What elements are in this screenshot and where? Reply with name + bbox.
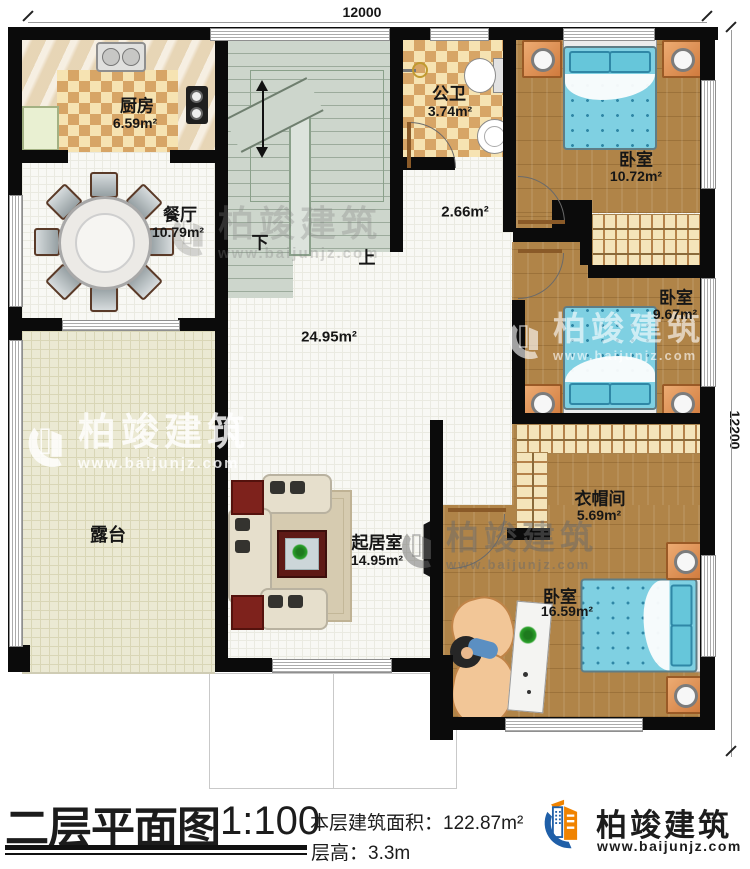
window xyxy=(701,80,716,189)
brand-logo-icon xyxy=(538,797,592,851)
nightstand xyxy=(522,40,562,78)
dining-table-top xyxy=(75,213,135,273)
fridge xyxy=(22,106,59,151)
pillow xyxy=(569,383,611,405)
window xyxy=(272,659,392,673)
kitchen-rug xyxy=(57,70,178,152)
window xyxy=(701,555,716,657)
wall xyxy=(22,318,62,331)
room-label-terrace: 露台 xyxy=(90,521,126,547)
dimension-right: 12200 xyxy=(727,411,743,450)
room-area-dining: 10.79m² xyxy=(152,224,204,240)
pillow xyxy=(609,51,651,73)
dimension-top: 12000 xyxy=(343,4,382,20)
stairwell-lower-flight xyxy=(228,252,293,298)
sofa-loveseat xyxy=(262,474,332,514)
room-label-kitchen: 厨房 xyxy=(120,92,154,117)
toilet-bowl xyxy=(464,58,496,93)
dining-chair xyxy=(34,228,60,256)
floor-height-value: 3.3m xyxy=(368,843,410,864)
room-label-living: 起居室 xyxy=(352,529,403,554)
sink-basin xyxy=(102,48,120,66)
terrace-floor xyxy=(22,331,215,674)
wall xyxy=(8,645,30,672)
wall xyxy=(390,658,432,672)
floor-height-label: 层高： xyxy=(311,843,368,864)
closet-rack xyxy=(592,239,702,266)
dining-table xyxy=(58,196,152,290)
cloakroom-rack xyxy=(516,452,548,534)
wall xyxy=(507,528,550,540)
pillow xyxy=(609,383,651,405)
sliding-door xyxy=(62,320,180,331)
wall xyxy=(215,300,228,672)
person-head xyxy=(461,647,473,659)
title-underline xyxy=(5,845,307,850)
bedroom-bottom-door xyxy=(448,508,506,512)
room-area-kitchen: 6.59m² xyxy=(113,115,157,131)
window xyxy=(563,28,655,41)
floor-area-value: 122.87m² xyxy=(443,813,523,834)
side-table xyxy=(231,595,264,630)
burner xyxy=(190,107,203,120)
window xyxy=(505,718,643,732)
room-area-open: 24.95m² xyxy=(301,329,357,346)
arrow-up-icon xyxy=(256,80,268,91)
stair-label-down: 下 xyxy=(252,229,269,254)
brand-logo xyxy=(538,797,592,856)
sink-bowl xyxy=(484,126,505,147)
room-label-dining: 餐厅 xyxy=(163,201,197,226)
stair-direction-arrow xyxy=(262,90,264,148)
room-label-bedroom-mid: 卧室 xyxy=(659,284,693,309)
cloakroom-rack xyxy=(516,424,702,454)
roof-outline xyxy=(209,673,335,789)
brand-site: www.baijunjz.com xyxy=(597,838,742,854)
window xyxy=(701,278,716,387)
wall xyxy=(170,150,215,163)
bedroom-top-door xyxy=(518,220,565,224)
desk-plant xyxy=(519,626,537,644)
dimension-line-right xyxy=(731,30,732,757)
pillow xyxy=(671,585,693,627)
wall xyxy=(513,228,585,242)
room-area-living: 14.95m² xyxy=(351,552,403,568)
nightstand xyxy=(662,40,702,78)
wall xyxy=(22,150,68,163)
room-area-bedroom-top: 10.72m² xyxy=(610,168,662,184)
scale-value: 1:100 xyxy=(220,799,320,844)
floor-area-line: 本层建筑面积：122.87m² xyxy=(310,808,523,835)
wall xyxy=(512,413,702,424)
wall xyxy=(512,300,525,420)
stair-label-up: 上 xyxy=(359,244,376,269)
floor-height-line: 层高：3.3m xyxy=(311,838,410,865)
room-area-cloakroom: 5.69m² xyxy=(577,507,621,523)
bed-double xyxy=(563,306,657,418)
sink-basin xyxy=(122,48,140,66)
terrace-railing xyxy=(9,340,23,647)
dimension-tick xyxy=(22,10,33,21)
arrow-down-icon xyxy=(256,147,268,158)
room-label-cloakroom: 衣帽间 xyxy=(575,485,626,510)
side-table xyxy=(231,480,264,515)
room-area-bath: 3.74m² xyxy=(428,103,472,119)
dimension-tick xyxy=(701,10,712,21)
desk-item xyxy=(527,690,531,694)
window xyxy=(9,195,23,307)
window xyxy=(210,28,390,41)
room-area-hallway: 2.66m² xyxy=(441,204,489,221)
bathroom-door xyxy=(407,122,411,168)
bed-double xyxy=(563,38,657,150)
pillow xyxy=(569,51,611,73)
room-label-bedroom-top: 卧室 xyxy=(619,146,653,171)
bedroom-mid-door xyxy=(518,249,562,253)
burner xyxy=(190,90,203,103)
nightstand xyxy=(666,542,704,580)
wall xyxy=(588,265,700,278)
room-label-bath: 公卫 xyxy=(432,80,466,105)
title-underline xyxy=(5,853,307,855)
closet-rack xyxy=(592,214,702,241)
bed-double xyxy=(581,579,706,673)
desk-item xyxy=(523,672,528,677)
wall xyxy=(215,27,228,300)
room-area-bedroom-mid: 9.67m² xyxy=(653,306,697,322)
stove xyxy=(186,86,208,124)
dining-chair xyxy=(90,172,118,198)
dimension-line-top xyxy=(28,22,707,23)
table-plant xyxy=(292,544,308,560)
floor-area-label: 本层建筑面积： xyxy=(310,813,443,834)
sofa-loveseat xyxy=(260,588,328,630)
kitchen-sink xyxy=(96,42,146,72)
towel-ring xyxy=(412,62,428,78)
pillow xyxy=(671,625,693,667)
wall xyxy=(390,27,403,252)
room-area-bedroom-bottom: 16.59m² xyxy=(541,603,593,619)
nightstand xyxy=(666,676,704,714)
wall xyxy=(430,420,443,660)
window xyxy=(430,28,489,41)
wall xyxy=(503,27,516,232)
